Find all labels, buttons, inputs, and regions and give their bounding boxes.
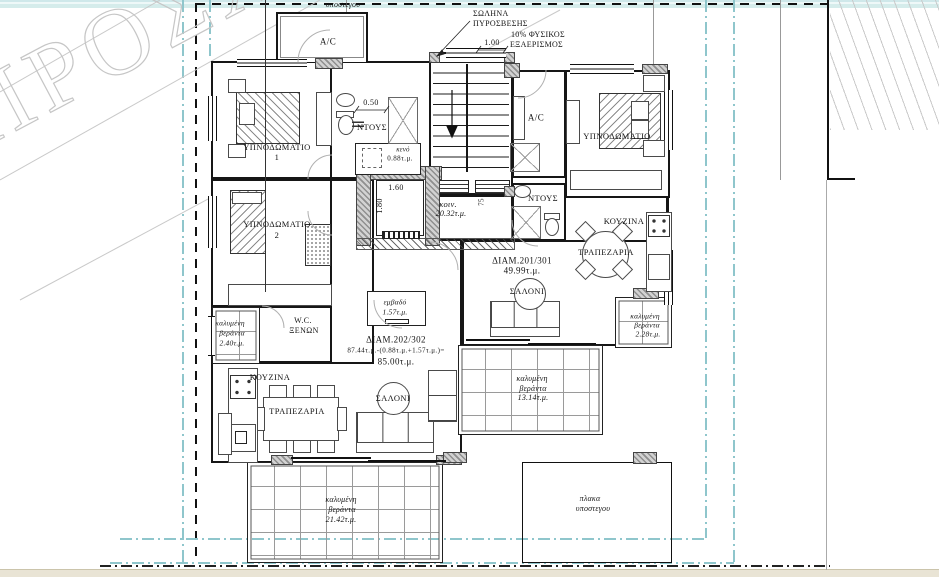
neighbor-boundary bbox=[827, 0, 829, 180]
sofa-base bbox=[356, 442, 434, 453]
room-label-bedroom-right: ΥΠΝΟΔΩΜΑΤΙΟ bbox=[583, 132, 650, 141]
stove bbox=[648, 215, 670, 237]
shower-tray bbox=[388, 97, 418, 144]
sliding-door-rail bbox=[528, 343, 596, 345]
ac-unit bbox=[513, 96, 525, 140]
corridor-label: κοιν. bbox=[439, 200, 457, 209]
room-label-living-right: ΣΑΛΟΝΙ bbox=[510, 287, 544, 296]
nightstand bbox=[228, 79, 246, 93]
chair bbox=[317, 385, 335, 398]
pier bbox=[271, 455, 293, 465]
nightstand bbox=[643, 75, 665, 92]
elevator-width-dim: 1.60 bbox=[388, 184, 404, 192]
veranda-east-label2: βεράντα bbox=[634, 321, 660, 329]
bottom-scan-band bbox=[0, 569, 939, 577]
elevator-depth-dim: 1.80 bbox=[376, 198, 384, 214]
chair bbox=[269, 440, 287, 453]
room-label-living-left: ΣΑΛΟΝΙ bbox=[376, 394, 410, 403]
window bbox=[208, 196, 217, 248]
apartment-right-id: ΔΙΑΜ.201/301 bbox=[492, 257, 552, 266]
room-label-dining-right: ΤΡΑΠΕΖΑΡΙΑ bbox=[578, 248, 634, 257]
veranda-south-right-label: καλυμένη bbox=[516, 375, 547, 383]
desk bbox=[570, 170, 662, 190]
dimension: 1.00 bbox=[484, 39, 500, 47]
veranda-west-area: 2.40τ.μ. bbox=[220, 339, 245, 347]
nightstand bbox=[643, 140, 665, 157]
ac-label-left: A/C bbox=[320, 38, 336, 47]
room-label-bedroom2-num: 2 bbox=[275, 231, 280, 240]
setback-line bbox=[209, 0, 211, 60]
tall-cabinet bbox=[218, 413, 232, 455]
veranda-west-label: καλυμένη bbox=[215, 319, 244, 327]
void-area: 0.88τ.μ. bbox=[387, 156, 413, 163]
window bbox=[208, 316, 215, 356]
shelter-slab-label2: υποστεγου bbox=[576, 505, 610, 513]
shelter-slab-label: πλακα bbox=[580, 495, 601, 503]
veranda-south-right-label2: βεράντα bbox=[519, 385, 546, 393]
window bbox=[570, 64, 634, 74]
area-box-area: 1.57τ.μ. bbox=[383, 308, 408, 316]
pillow bbox=[239, 103, 255, 125]
window bbox=[446, 48, 506, 58]
shower-tray bbox=[511, 206, 541, 239]
property-line-left bbox=[195, 3, 197, 563]
pier bbox=[633, 452, 657, 464]
pier bbox=[315, 58, 343, 69]
chair bbox=[269, 385, 287, 398]
sliding-door-rail bbox=[291, 457, 371, 459]
veranda-south-right-area: 13.14τ.μ. bbox=[518, 394, 549, 402]
room-label-dining-left: ΤΡΑΠΕΖΑΡΙΑ bbox=[269, 407, 325, 416]
veranda-south-left-label2: βεράντα bbox=[328, 506, 355, 514]
elevator-shaft-wall bbox=[356, 166, 371, 246]
stair-treads bbox=[433, 62, 509, 170]
area-box-label: εμβαδό bbox=[384, 298, 407, 306]
armchair bbox=[428, 370, 457, 422]
sofa bbox=[356, 412, 434, 444]
top-shelter-label: υποστεγου bbox=[326, 1, 360, 9]
property-line-bottom bbox=[100, 565, 830, 567]
neighbor-boundary bbox=[827, 178, 855, 180]
room-label-kitchen-right: ΚΟΥΖΙΝΑ bbox=[604, 217, 645, 226]
pillow bbox=[631, 101, 649, 120]
room-label-wc2: ΞΕΝΩΝ bbox=[289, 327, 319, 335]
apartment-right-area: 49.99τ.μ. bbox=[504, 267, 541, 276]
veranda-east-area: 2.28τ.μ. bbox=[636, 330, 661, 338]
pier bbox=[642, 64, 668, 74]
ac-shaft bbox=[510, 143, 540, 172]
grid-line bbox=[780, 0, 781, 180]
apartment-left-calc: 87.44τ.μ.-(0.88τ.μ.+1.57τ.μ.)= bbox=[347, 348, 444, 355]
pier bbox=[443, 452, 467, 463]
sliding-door-rail bbox=[466, 339, 530, 341]
elevator-door bbox=[382, 231, 420, 239]
kitchen-sink bbox=[648, 254, 670, 280]
dimension: 0.50 bbox=[363, 99, 379, 107]
wall-hatched bbox=[356, 238, 515, 250]
setback-line bbox=[733, 0, 735, 563]
floor-plan: ΠΡΟΣΧΕΔΙΟ bbox=[0, 0, 939, 577]
veranda-east-label: καλυμένη bbox=[630, 312, 659, 320]
sliding-door-rail bbox=[368, 460, 446, 462]
apartment-left-id: ΔΙΑΜ.202/302 bbox=[366, 336, 426, 345]
corridor-area: 20.32τ.μ. bbox=[436, 210, 467, 218]
grid-line bbox=[653, 0, 654, 70]
desk bbox=[228, 284, 332, 306]
pillow bbox=[232, 192, 262, 204]
column bbox=[429, 52, 440, 63]
ventilation-label: 10% ΦΥΣΙΚΟΣ bbox=[511, 31, 565, 39]
fire-pipe-label: ΠΥΡΟΣΒΕΣΗΣ bbox=[473, 20, 528, 28]
room-label-shower-left: ΝΤΟΥΣ bbox=[357, 123, 387, 132]
neighbor-boundary bbox=[826, 180, 827, 570]
room-label-bedroom1: ΥΠΝΟΔΩΜΑΤΙΟ bbox=[243, 143, 310, 152]
ac-label-right: A/C bbox=[528, 114, 544, 123]
setback-line bbox=[705, 0, 707, 538]
chair bbox=[293, 440, 311, 453]
chair bbox=[293, 385, 311, 398]
dining-table bbox=[263, 397, 339, 441]
fire-pipe-label: ΣΩΛΗΝΑ bbox=[473, 10, 509, 18]
window bbox=[208, 96, 217, 141]
void-shaft bbox=[362, 148, 382, 168]
apartment-left-area: 85.00τ.μ. bbox=[378, 358, 415, 367]
dimension: 75 bbox=[479, 198, 486, 206]
elevator-shaft-wall bbox=[425, 166, 440, 246]
room-label-bedroom1-num: 1 bbox=[275, 153, 280, 162]
room-label-kitchen-left: ΚΟΥΖΙΝΑ bbox=[250, 373, 291, 382]
ventilation-label: ΕΞΑΕΡΙΣΜΟΣ bbox=[510, 41, 563, 49]
sofa-base bbox=[490, 327, 560, 337]
chair bbox=[337, 407, 347, 431]
void-label: κενό bbox=[396, 147, 410, 154]
veranda-south-left-area: 21.42τ.μ. bbox=[326, 516, 357, 524]
wardrobe bbox=[566, 100, 580, 144]
sink-basin bbox=[235, 431, 247, 444]
window bbox=[664, 90, 673, 150]
area-box-sill bbox=[385, 319, 409, 324]
washbasin bbox=[336, 93, 355, 107]
veranda-west-label2: βεράντα bbox=[219, 329, 245, 337]
wardrobe bbox=[316, 92, 332, 146]
toilet bbox=[545, 218, 559, 236]
setback-line bbox=[182, 0, 184, 566]
veranda-south-left-label: καλυμένη bbox=[325, 496, 356, 504]
room-label-bedroom2: ΥΠΝΟΔΩΜΑΤΙΟ bbox=[243, 220, 310, 229]
column bbox=[504, 63, 520, 78]
wardrobe-dotted bbox=[305, 224, 331, 266]
neighbor-hatch bbox=[830, 0, 939, 130]
room-label-shower-right: ΝΤΟΥΣ bbox=[528, 194, 558, 203]
window bbox=[237, 59, 307, 67]
room-label-wc: W.C. bbox=[294, 317, 312, 325]
chair bbox=[317, 440, 335, 453]
stair-spine bbox=[466, 64, 468, 172]
